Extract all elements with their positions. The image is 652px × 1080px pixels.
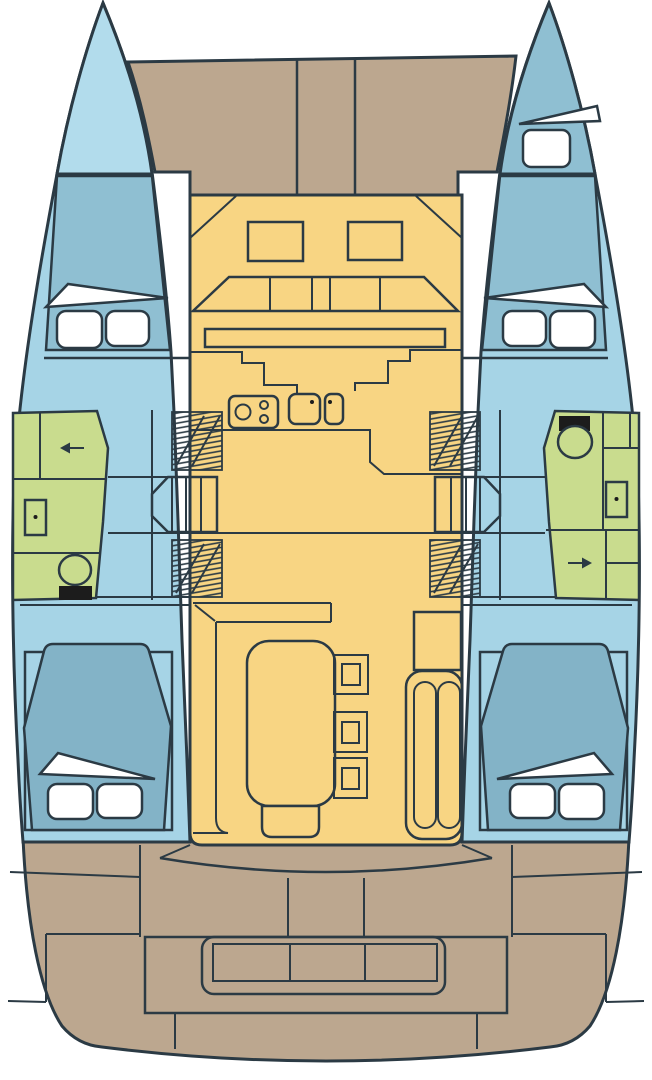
settee-table	[205, 329, 445, 347]
deck-seam	[606, 1001, 644, 1002]
port-forward-cabin	[44, 176, 190, 358]
starboard-aft-cabin	[480, 644, 628, 830]
starboard-forward-cabin	[462, 176, 608, 358]
starboard-forepeak-berth	[500, 3, 600, 174]
forepeak-hatch	[523, 130, 570, 167]
port-aft-cabin	[24, 644, 172, 830]
dining-table	[247, 641, 335, 806]
end-seat	[262, 806, 319, 837]
toilet-base	[59, 586, 92, 600]
pillow	[503, 311, 546, 346]
pillow	[48, 784, 93, 819]
pillow	[97, 784, 142, 818]
cabinet	[414, 612, 461, 670]
faucet-dot	[310, 400, 314, 404]
starboard-head	[544, 411, 639, 600]
pillow	[57, 311, 102, 348]
pillow	[550, 311, 595, 348]
pillow	[106, 311, 149, 346]
faucet-dot	[328, 400, 332, 404]
faucet-dot	[34, 515, 38, 519]
foredeck	[128, 56, 516, 195]
hatch-panel	[348, 222, 402, 260]
faucet-dot	[615, 497, 619, 501]
pillow	[510, 784, 555, 818]
deck-plan-canvas	[0, 0, 652, 1080]
port-head	[13, 411, 108, 600]
catamaran-deck-plan	[0, 0, 652, 1080]
deck-seam	[8, 1001, 46, 1002]
pillow	[559, 784, 604, 819]
hatch-panel	[248, 222, 303, 261]
toilet	[59, 555, 91, 585]
toilet	[558, 426, 592, 458]
